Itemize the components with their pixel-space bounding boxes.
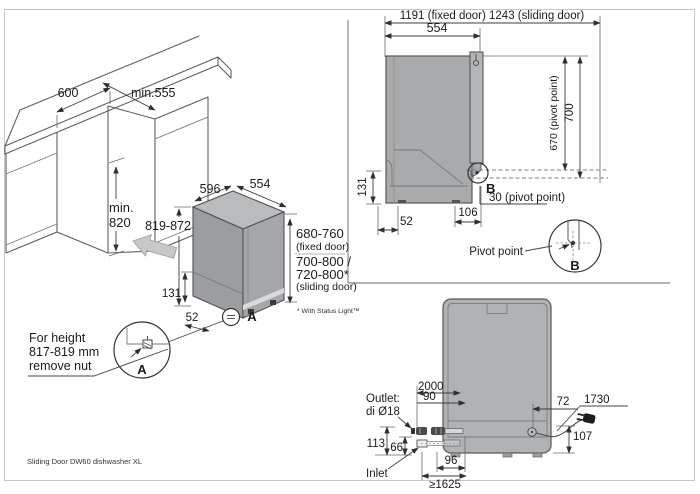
side-pivot-x-label: 106 <box>458 207 477 219</box>
installation-sheet: 600 min.555 min. 820 596 554 819-872 <box>0 0 700 494</box>
niche-height-label-1: min. <box>109 200 134 215</box>
niche-width-label: 600 <box>58 86 79 100</box>
cord-offset-label: 72 <box>557 396 570 408</box>
hose-spacing-label: 96 <box>445 455 458 467</box>
outlet-label-1: Outlet: <box>366 393 400 405</box>
rear-view: 2000 90 72 1730 Outlet: di Ø18 113 66 In… <box>366 299 628 491</box>
side-depth-label: 554 <box>427 21 448 35</box>
unit-depth-label: 596 <box>200 182 221 196</box>
inlet-height-label: 66 <box>390 442 403 454</box>
remove-nut-note-2: 817-819 mm <box>29 345 99 359</box>
side-base-label: 131 <box>357 177 369 196</box>
pivot-detail-ref: B <box>570 258 579 273</box>
cord-length-label: 1730 <box>584 394 610 406</box>
min-reach-label: ≥1625 <box>429 479 461 491</box>
unit-foot-label: 52 <box>186 312 199 324</box>
pivot-inset-label: 30 (pivot point) <box>489 192 565 204</box>
side-back-offset-label: 52 <box>400 216 413 228</box>
side-view: 1191 (fixed door) 1243 (sliding door) 55… <box>357 10 608 235</box>
side-pivot-height-label: 670 (pivot point) <box>548 75 560 150</box>
sliding-door-range-2: 720-800* <box>296 267 349 282</box>
niche-depth-label: min.555 <box>131 86 176 100</box>
detail-ref-a-label: A <box>247 309 257 324</box>
inlet-label: Inlet <box>366 468 389 480</box>
unit-height-label: 819-872 <box>145 219 191 233</box>
pivot-point-label: Pivot point <box>469 246 524 258</box>
fixed-door-caption: (fixed door) <box>296 241 349 253</box>
detail-a-ref: A <box>137 362 147 377</box>
detail-ref-a-circle <box>223 309 240 326</box>
unit-base-label: 131 <box>162 288 181 300</box>
pivot-point-detail: B Pivot point <box>469 220 601 273</box>
unit-front-face <box>243 212 284 318</box>
niche-height-label-2: 820 <box>109 215 131 230</box>
unit-width-label: 554 <box>250 177 271 191</box>
side-height-label: 700 <box>564 103 576 122</box>
remove-nut-note-1: For height <box>29 331 86 345</box>
remove-nut-note-3: remove nut <box>29 359 92 373</box>
sliding-door-caption: (sliding door) <box>296 281 357 293</box>
sheet-title: Sliding Door DW60 dishwasher XL <box>27 457 142 466</box>
rear-top-notch <box>487 304 507 314</box>
power-plug-icon <box>576 412 595 425</box>
detail-a-callout: A For height 817-819 mm remove nut <box>28 321 223 378</box>
outlet-hose-end <box>411 428 415 434</box>
outlet-height-label: 113 <box>367 438 385 450</box>
side-door <box>470 52 483 163</box>
cord-height-label: 107 <box>573 431 592 443</box>
fixed-door-range: 680-760 <box>296 226 344 241</box>
technical-drawing: 600 min.555 min. 820 596 554 819-872 <box>0 0 700 494</box>
outlet-offset-label: 90 <box>423 391 436 403</box>
outlet-label-2: di Ø18 <box>366 406 400 418</box>
status-light-footnote: * With Status Light™ <box>297 308 360 315</box>
